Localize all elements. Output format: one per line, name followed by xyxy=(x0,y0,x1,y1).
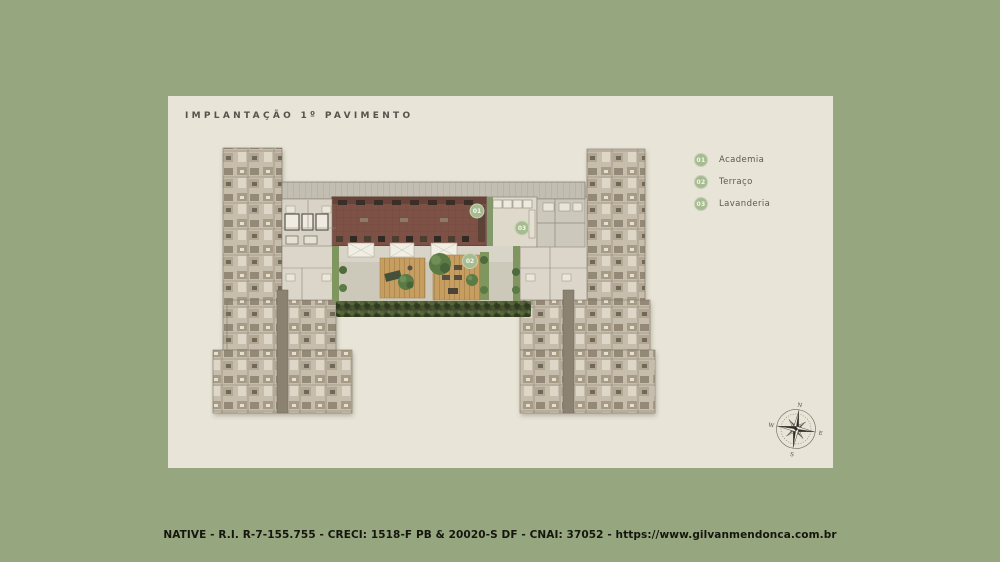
compass-west-label: W xyxy=(768,423,775,430)
legend-item-terraco: 02 Terraço xyxy=(694,175,770,189)
corridor xyxy=(282,182,585,199)
gym-academia xyxy=(332,197,487,246)
laundry-room xyxy=(487,197,537,247)
legend-item-lavanderia: 03 Lavanderia xyxy=(694,197,770,211)
right-core-shaft xyxy=(563,290,574,413)
plan-marker-03: 03 xyxy=(515,221,529,235)
compass-north-label: N xyxy=(797,402,803,409)
legend-badge-01: 01 xyxy=(694,153,708,167)
legend-label-terraco: Terraço xyxy=(719,177,753,187)
legend-label-lavanderia: Lavanderia xyxy=(719,199,770,209)
legend-label-academia: Academia xyxy=(719,155,764,165)
hedge xyxy=(336,301,531,317)
plan-marker-02: 02 xyxy=(463,254,478,269)
left-core-shaft xyxy=(277,290,288,413)
legend-badge-03: 03 xyxy=(694,197,708,211)
footer-registration-text: NATIVE - R.I. R-7-155.755 - CRECI: 1518-… xyxy=(0,529,1000,541)
page-title: IMPLANTAÇÃO 1º PAVIMENTO xyxy=(185,111,413,121)
svg-text:02: 02 xyxy=(466,258,474,265)
legend-badge-02: 02 xyxy=(694,175,708,189)
legend: 01 Academia 02 Terraço 03 Lavanderia xyxy=(694,153,770,211)
floorplan-card: IMPLANTAÇÃO 1º PAVIMENTO xyxy=(168,96,833,468)
compass-south-label: S xyxy=(790,452,795,459)
svg-text:03: 03 xyxy=(518,225,526,232)
compass-rose: N E S W xyxy=(766,399,826,459)
service-rooms xyxy=(537,199,585,247)
floor-plan-drawing: 01 02 03 xyxy=(210,140,660,420)
compass-east-label: E xyxy=(818,431,823,438)
compass-icon: N E S W xyxy=(766,399,826,459)
terrace-garden xyxy=(332,243,520,302)
presentation-slide: IMPLANTAÇÃO 1º PAVIMENTO xyxy=(0,0,1000,562)
plan-marker-01: 01 xyxy=(470,204,484,218)
legend-item-academia: 01 Academia xyxy=(694,153,770,167)
floor-plan: 01 02 03 xyxy=(210,140,660,420)
svg-text:01: 01 xyxy=(473,208,481,215)
